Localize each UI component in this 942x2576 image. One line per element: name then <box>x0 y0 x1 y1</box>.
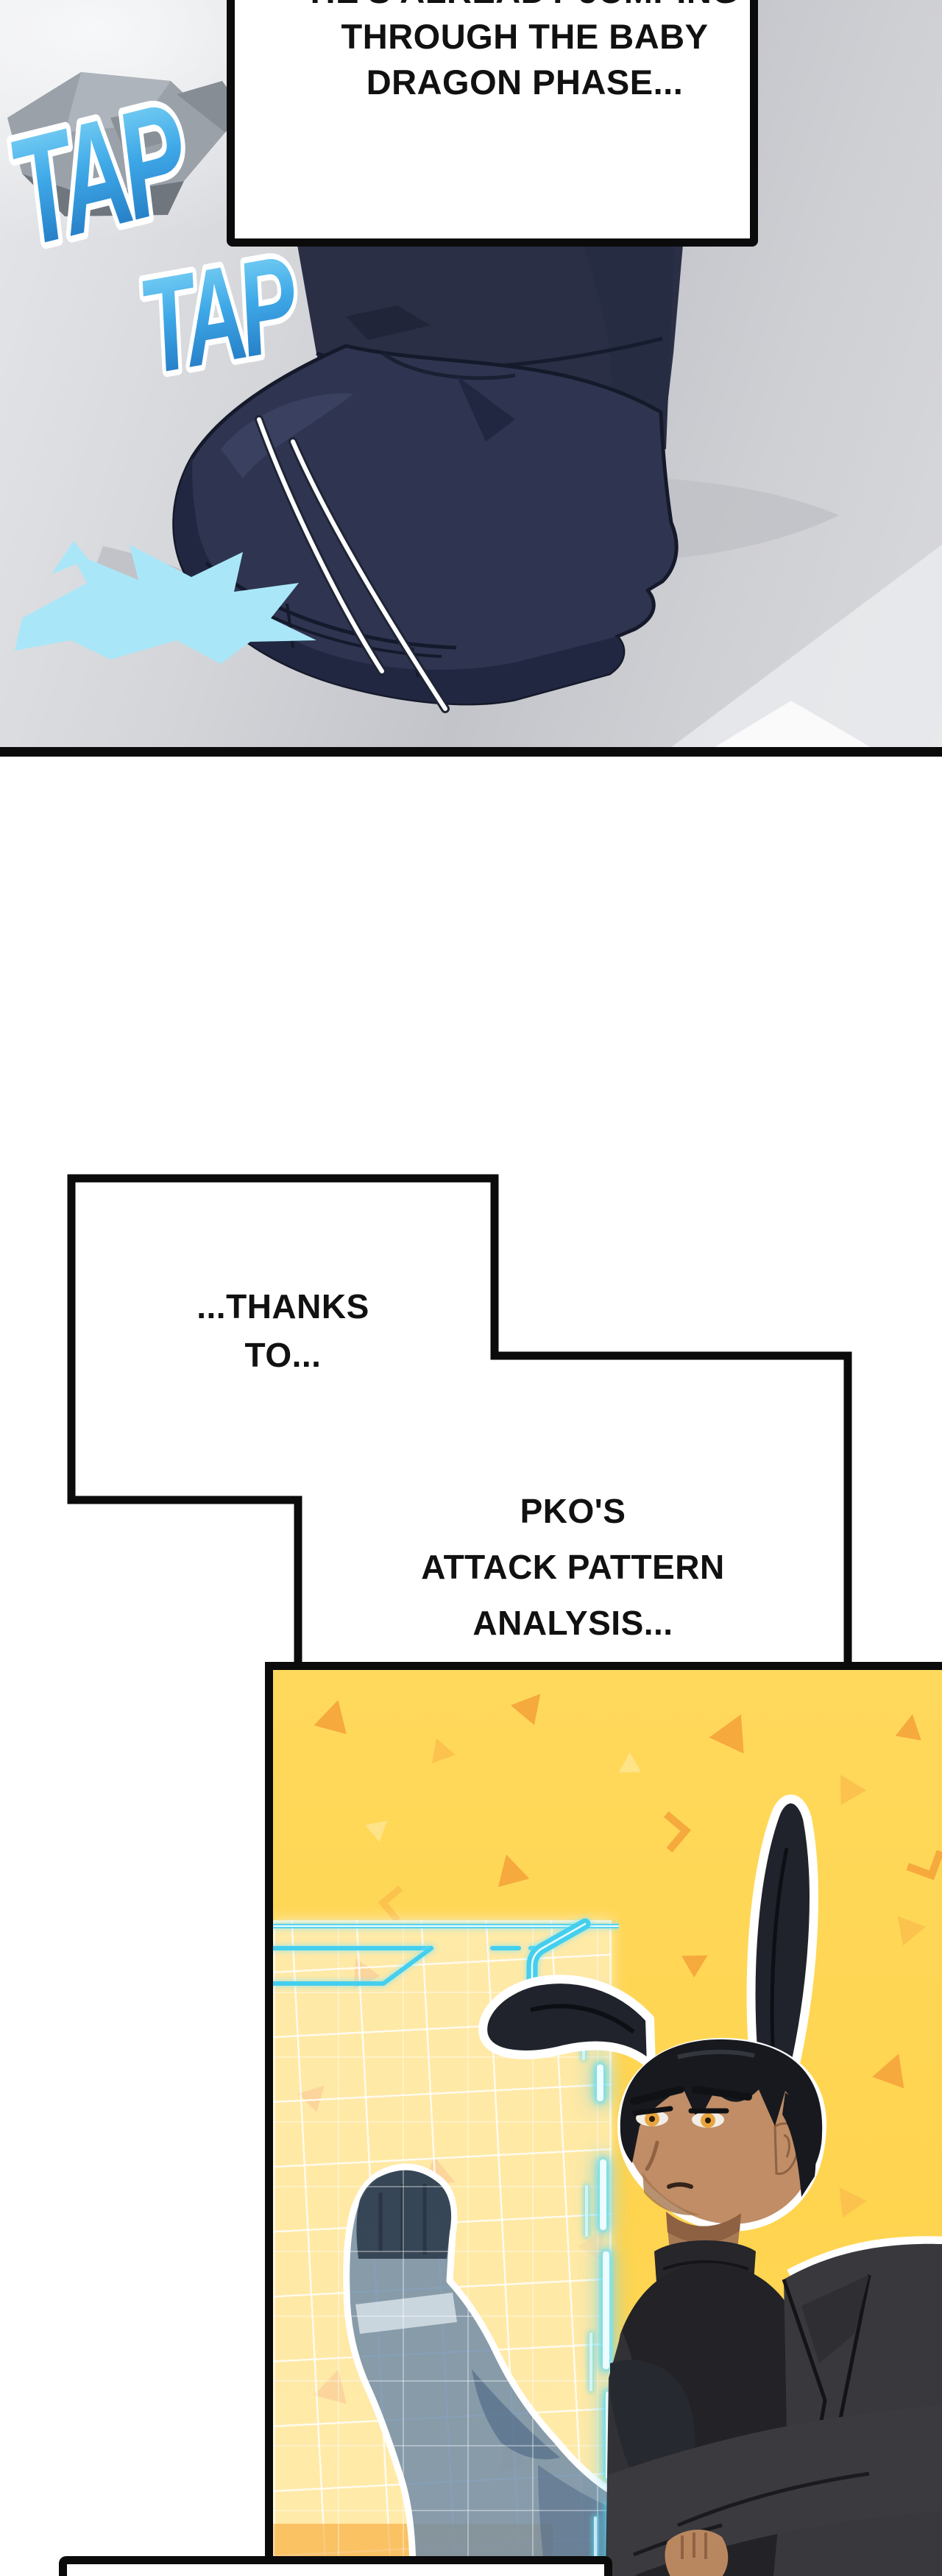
webtoon-page: TAP TAP HE'S ALREADY JUMPING THROUGH THE… <box>0 0 942 2576</box>
bubble-line: ATTACK PATTERN <box>298 1539 848 1595</box>
bubble-line: TO... <box>71 1331 495 1379</box>
speech-bubble-pko-text: PKO'S ATTACK PATTERN ANALYSIS... <box>298 1483 848 1651</box>
bubble-line: DRAGON PHASE... <box>300 60 750 105</box>
sfx-tap-2: TAP <box>130 227 309 403</box>
bubble-line: PKO'S <box>298 1483 848 1539</box>
hand <box>665 2530 729 2576</box>
speech-bubble-bottom <box>59 2556 612 2576</box>
bubble-line: HE'S ALREADY JUMPING <box>300 0 750 14</box>
speech-bubble-top: HE'S ALREADY JUMPING THROUGH THE BABY DR… <box>227 0 758 247</box>
panel-analysis-scene <box>265 1662 942 2576</box>
bubble-line: THROUGH THE BABY <box>300 14 750 60</box>
speech-bubble-thanks-text: ...THANKS TO... <box>71 1282 495 1379</box>
bunny-ears-man-art <box>457 1760 942 2576</box>
speech-bubble-top-text: HE'S ALREADY JUMPING THROUGH THE BABY DR… <box>235 0 750 105</box>
panel-analysis-art <box>273 1670 942 2576</box>
bunny-ear-bent <box>483 1979 651 2066</box>
bubble-line: ANALYSIS... <box>298 1595 848 1651</box>
bubble-line: ...THANKS <box>71 1282 495 1331</box>
